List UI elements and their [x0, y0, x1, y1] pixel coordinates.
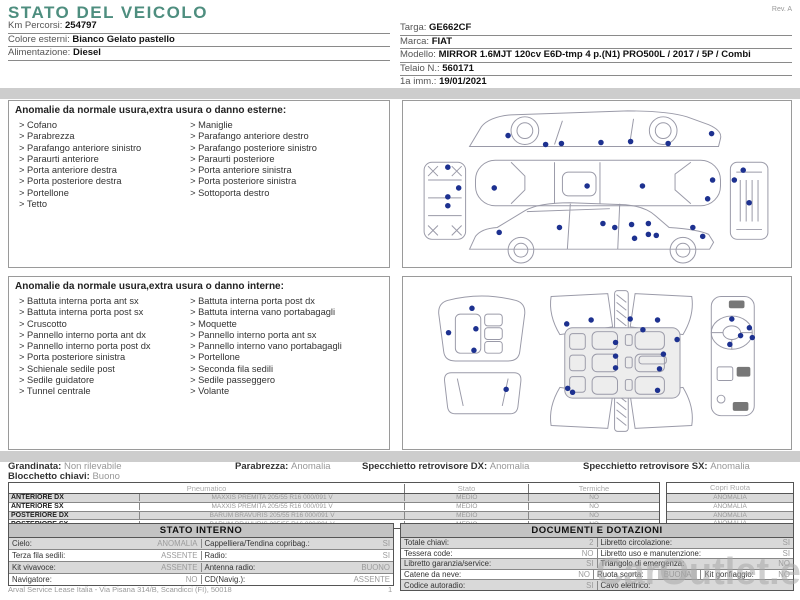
- vehicle-info-row: Targa: GE662CF: [400, 22, 792, 36]
- cell-value: NO: [182, 575, 198, 584]
- table-cell: Radio:SI: [201, 551, 394, 560]
- tyre-table-header: Pneumatico Stato Termiche: [9, 483, 659, 494]
- vehicle-info-right: Targa: GE662CFMarca: FIATModello: MIRROR…: [400, 22, 792, 90]
- anomaly-item: > Pannello interno porta post dx: [19, 341, 190, 352]
- damage-dot: [738, 333, 743, 338]
- interior-anomalies-column-2: > Battuta interna porta post dx> Battuta…: [190, 296, 383, 398]
- tyre-termiche: NO: [528, 494, 659, 501]
- summary-label: Blocchetto chiavi:: [8, 471, 92, 482]
- exterior-anomalies-column-1: > Cofano> Parabrezza> Parafango anterior…: [19, 120, 190, 210]
- summary-item: Blocchetto chiavi: Buono: [8, 471, 120, 482]
- table-cell: Cavo elettrico:: [597, 581, 794, 590]
- damage-dot: [446, 330, 451, 335]
- damage-dot: [710, 177, 716, 183]
- cell-label: Kit vivavoce:: [12, 563, 56, 572]
- tyre-row: ANTERIORE DXMAXXIS PREMITA 205/55 R16 00…: [9, 494, 659, 502]
- anomaly-item: > Moquette: [190, 319, 383, 330]
- info-value: 560171: [442, 63, 474, 74]
- damage-dot: [629, 222, 635, 228]
- cell-value: NO: [774, 559, 790, 568]
- info-label: Colore esterni:: [8, 34, 72, 45]
- cell-value: SI: [582, 559, 593, 568]
- table-cell: Kit gonfiaggio:NO: [700, 570, 793, 579]
- damage-dot: [640, 183, 646, 189]
- exterior-damage-diagram: [402, 100, 792, 268]
- damage-dot: [491, 185, 497, 191]
- cell-label: Terza fila sedili:: [12, 551, 65, 560]
- cell-value: NO: [774, 570, 790, 579]
- table-cell: Cielo:ANOMALIA: [9, 539, 201, 548]
- tyre-header-termiche: Termiche: [528, 484, 659, 493]
- summary-value: Anomalia: [710, 461, 750, 472]
- tyre-termiche: NO: [528, 512, 659, 519]
- damage-dot: [543, 142, 549, 148]
- table-cell: Ruota scorta:BUONA: [593, 570, 700, 579]
- tyre-description: MAXXIS PREMITA 205/55 R16 000/091 V: [139, 503, 405, 510]
- damage-dot: [700, 234, 706, 240]
- damage-dot: [584, 183, 590, 189]
- cell-value: NO: [574, 570, 590, 579]
- anomaly-item: > Battuta interna porta post dx: [190, 296, 383, 307]
- table-cell: Libretto circolazione:SI: [597, 538, 794, 547]
- table-row: Navigatore:NOCD(Navig.):ASSENTE: [9, 573, 393, 585]
- damage-dot: [628, 139, 634, 145]
- anomaly-item: > Portellone: [19, 188, 190, 199]
- table-cell: Triangolo di emergenza:NO: [597, 559, 794, 568]
- summary-item: Specchietto retrovisore SX: Anomalia: [583, 461, 750, 472]
- cell-value: BUONO: [357, 563, 390, 572]
- tyre-stato: MEDIO: [404, 512, 528, 519]
- cell-label: Triangolo di emergenza:: [601, 559, 685, 568]
- tyre-row: POSTERIORE DXBARUM BRAVURIS 205/55 R16 0…: [9, 511, 659, 520]
- info-label: Km Percorsi:: [8, 20, 65, 31]
- cell-label: Cavo elettrico:: [601, 581, 651, 590]
- cell-label: CD(Navig.):: [205, 575, 246, 584]
- tyre-header-pneumatico: Pneumatico: [9, 484, 404, 493]
- interior-anomalies-title: Anomalie da normale usura,extra usura o …: [15, 281, 383, 292]
- info-value: 254797: [65, 20, 97, 31]
- damage-dot: [564, 321, 569, 326]
- anomaly-item: > Tunnel centrale: [19, 386, 190, 397]
- cell-value: SI: [582, 581, 593, 590]
- copri-ruota-value: ANOMALIA: [667, 494, 793, 502]
- table-cell: Terza fila sedili:ASSENTE: [9, 551, 201, 560]
- damage-dot: [588, 317, 593, 322]
- damage-dot: [469, 306, 474, 311]
- summary-label: Specchietto retrovisore SX:: [583, 461, 710, 472]
- cell-value: ASSENTE: [350, 575, 390, 584]
- vehicle-status-report: STATO DEL VEICOLO Rev. A Km Percorsi: 25…: [0, 0, 800, 600]
- anomaly-item: > Pannello interno vano portabagagli: [190, 341, 383, 352]
- tyre-position: ANTERIORE SX: [9, 503, 139, 510]
- cell-label: Libretto uso e manutenzione:: [601, 549, 702, 558]
- damage-dot: [445, 164, 451, 170]
- stato-interno-table: STATO INTERNO Cielo:ANOMALIACappelliera/…: [8, 523, 394, 586]
- info-value: GE662CF: [429, 22, 471, 33]
- table-cell: CD(Navig.):ASSENTE: [201, 575, 394, 584]
- damage-dot: [613, 340, 618, 345]
- cell-value: ASSENTE: [157, 551, 197, 560]
- summary-value: Anomalia: [291, 461, 331, 472]
- anomaly-item: > Pannello interno porta ant dx: [19, 330, 190, 341]
- summary-label: Specchietto retrovisore DX:: [362, 461, 490, 472]
- car-interior-diagram-icon: [404, 277, 790, 445]
- table-row: Cielo:ANOMALIACappelliera/Tendina coprib…: [9, 538, 393, 549]
- damage-dot: [665, 141, 671, 147]
- damage-dot: [632, 236, 638, 242]
- table-cell: Cappelliera/Tendina copribag.:SI: [201, 539, 394, 548]
- anomaly-item: > Porta anteriore destra: [19, 165, 190, 176]
- vehicle-info-row: Modello: MIRROR 1.6MJT 120cv E6D-tmp 4 p…: [400, 49, 792, 63]
- anomaly-item: > Schienale sedile post: [19, 364, 190, 375]
- cell-label: Cielo:: [12, 539, 32, 548]
- table-row: Libretto garanzia/service:SITriangolo di…: [401, 558, 793, 569]
- info-label: Telaio N.:: [400, 63, 442, 74]
- damage-dot: [732, 177, 738, 183]
- exterior-anomalies-column-2: > Maniglie> Parafango anteriore destro> …: [190, 120, 383, 210]
- table-cell: Codice autoradio:SI: [401, 581, 597, 590]
- tyre-position: ANTERIORE DX: [9, 494, 139, 501]
- table-cell: Catene da neve:NO: [401, 570, 593, 579]
- footer-address: Arval Service Lease Italia - Via Pisana …: [8, 585, 232, 594]
- cell-value: SI: [379, 551, 390, 560]
- damage-dot: [598, 140, 604, 146]
- anomaly-item: > Porta posteriore destra: [19, 176, 190, 187]
- cell-value: SI: [779, 549, 790, 558]
- cell-value: ANOMALIA: [153, 539, 197, 548]
- table-cell: Kit vivavoce:ASSENTE: [9, 563, 201, 572]
- damage-dot: [690, 225, 696, 231]
- anomaly-item: > Parafango posteriore sinistro: [190, 143, 383, 154]
- table-cell: Libretto garanzia/service:SI: [401, 559, 597, 568]
- damage-dot: [747, 325, 752, 330]
- anomaly-item: > Tetto: [19, 199, 190, 210]
- tyre-description: MAXXIS PREMITA 205/55 R16 000/091 V: [139, 494, 405, 501]
- summary-value: Anomalia: [490, 461, 530, 472]
- summary-item: Specchietto retrovisore DX: Anomalia: [362, 461, 529, 472]
- stato-interno-title: STATO INTERNO: [9, 524, 393, 538]
- cell-label: Totale chiavi:: [404, 538, 449, 547]
- table-cell: Navigatore:NO: [9, 575, 201, 584]
- damage-dot: [557, 225, 563, 231]
- damage-dot: [570, 390, 575, 395]
- tyre-description: BARUM BRAVURIS 205/55 R16 000/091 V: [139, 512, 405, 519]
- cell-value: SI: [779, 538, 790, 547]
- info-label: Marca:: [400, 36, 432, 47]
- cell-label: Codice autoradio:: [404, 581, 465, 590]
- damage-dot: [655, 388, 660, 393]
- damage-dot: [646, 232, 652, 238]
- damage-dot: [657, 366, 662, 371]
- anomaly-item: > Parafango anteriore sinistro: [19, 143, 190, 154]
- separator-band: [0, 88, 800, 99]
- vehicle-info-row: Marca: FIAT: [400, 36, 792, 50]
- documenti-dotazioni-rows: Totale chiavi:2Libretto circolazione:SIT…: [401, 538, 793, 590]
- anomaly-item: > Cofano: [19, 120, 190, 131]
- table-row: Codice autoradio:SICavo elettrico:: [401, 579, 793, 590]
- tyre-header-stato: Stato: [404, 484, 528, 493]
- table-row: Terza fila sedili:ASSENTERadio:SI: [9, 549, 393, 561]
- vehicle-info-row: Colore esterni: Bianco Gelato pastello: [8, 34, 390, 48]
- damage-dot: [646, 221, 652, 227]
- anomaly-item: > Porta posteriore sinistra: [19, 352, 190, 363]
- tyre-position: POSTERIORE DX: [9, 512, 139, 519]
- damage-dot: [559, 141, 565, 147]
- info-label: Targa:: [400, 22, 429, 33]
- damage-dot: [661, 351, 666, 356]
- table-row: Tessera code:NOLibretto uso e manutenzio…: [401, 548, 793, 559]
- anomaly-item: > Porta anteriore sinistra: [190, 165, 383, 176]
- damage-dot: [727, 342, 732, 347]
- damage-dot: [627, 316, 632, 321]
- anomaly-item: > Portellone: [190, 352, 383, 363]
- exterior-damage-dots: [445, 131, 752, 241]
- interior-damage-diagram: [402, 276, 792, 450]
- damage-dot: [445, 194, 451, 200]
- anomaly-item: > Paraurti anteriore: [19, 154, 190, 165]
- damage-dot: [709, 131, 715, 137]
- info-label: Modello:: [400, 49, 439, 60]
- damage-dot: [496, 230, 502, 236]
- vehicle-info-row: Telaio N.: 560171: [400, 63, 792, 77]
- damage-dot: [750, 335, 755, 340]
- summary-label: Parabrezza:: [235, 461, 291, 472]
- damage-dot: [655, 317, 660, 322]
- anomaly-item: > Sedile passeggero: [190, 375, 383, 386]
- table-row: Kit vivavoce:ASSENTEAntenna radio:BUONO: [9, 561, 393, 573]
- documenti-dotazioni-table: DOCUMENTI E DOTAZIONI Totale chiavi:2Lib…: [400, 523, 794, 591]
- anomaly-item: > Porta posteriore sinistra: [190, 176, 383, 187]
- damage-dot: [565, 386, 570, 391]
- summary-item: Parabrezza: Anomalia: [235, 461, 331, 472]
- info-value: MIRROR 1.6MJT 120cv E6D-tmp 4 p.(N1) PRO…: [439, 49, 751, 60]
- cell-label: Navigatore:: [12, 575, 52, 584]
- cell-label: Antenna radio:: [205, 563, 256, 572]
- cell-label: Libretto circolazione:: [601, 538, 673, 547]
- info-value: FIAT: [432, 36, 452, 47]
- tyre-stato: MEDIO: [404, 494, 528, 501]
- anomaly-item: > Parabrezza: [19, 131, 190, 142]
- cell-value: NO: [578, 549, 594, 558]
- damage-dot: [729, 316, 734, 321]
- cell-label: Kit gonfiaggio:: [704, 570, 753, 579]
- cell-label: Libretto garanzia/service:: [404, 559, 491, 568]
- info-value: Diesel: [73, 47, 101, 58]
- table-row: Catene da neve:NORuota scorta:BUONAKit g…: [401, 569, 793, 580]
- info-value: 19/01/2021: [439, 76, 487, 87]
- anomaly-item: > Parafango anteriore destro: [190, 131, 383, 142]
- interior-anomalies-column-1: > Battuta interna porta ant sx> Battuta …: [19, 296, 190, 398]
- damage-dot: [505, 133, 511, 139]
- damage-dot: [456, 185, 462, 191]
- damage-dot: [640, 327, 645, 332]
- damage-dot: [473, 326, 478, 331]
- cell-label: Catene da neve:: [404, 570, 461, 579]
- damage-dot: [674, 337, 679, 342]
- anomaly-item: > Sedile guidatore: [19, 375, 190, 386]
- damage-dot: [746, 200, 752, 206]
- revision-label: Rev. A: [772, 6, 792, 13]
- cell-value: SI: [379, 539, 390, 548]
- cell-label: Radio:: [205, 551, 228, 560]
- vehicle-info-left: Km Percorsi: 254797Colore esterni: Bianc…: [8, 20, 390, 61]
- damage-dot: [705, 196, 711, 202]
- cell-label: Ruota scorta:: [597, 570, 643, 579]
- vehicle-info-row: Km Percorsi: 254797: [8, 20, 390, 34]
- damage-dot: [740, 167, 746, 173]
- tyre-stato: MEDIO: [404, 503, 528, 510]
- summary-value: Buono: [92, 471, 119, 482]
- exterior-anomalies-box: Anomalie da normale usura,extra usura o …: [8, 100, 390, 268]
- copri-ruota-value: ANOMALIA: [667, 511, 793, 520]
- copri-ruota-value: ANOMALIA: [667, 502, 793, 511]
- damage-dot: [654, 233, 660, 239]
- anomaly-item: > Pannello interno porta ant sx: [190, 330, 383, 341]
- cell-value: BUONA: [658, 570, 698, 579]
- anomaly-item: > Battuta interna porta ant sx: [19, 296, 190, 307]
- damage-dot: [612, 225, 618, 231]
- car-exterior-diagram-icon: [404, 101, 790, 265]
- anomaly-item: > Maniglie: [190, 120, 383, 131]
- cell-value: 2: [585, 538, 593, 547]
- anomaly-item: > Seconda fila sedili: [190, 364, 383, 375]
- info-value: Bianco Gelato pastello: [72, 34, 174, 45]
- damage-dot: [600, 221, 606, 227]
- cell-value: ASSENTE: [157, 563, 197, 572]
- documenti-dotazioni-title: DOCUMENTI E DOTAZIONI: [401, 524, 793, 538]
- copri-ruota-header: Copri Ruota: [667, 483, 793, 494]
- vehicle-info-row: Alimentazione: Diesel: [8, 47, 390, 61]
- damage-dot: [613, 365, 618, 370]
- tyre-termiche: NO: [528, 503, 659, 510]
- damage-dot: [613, 353, 618, 358]
- table-cell: Totale chiavi:2: [401, 538, 597, 547]
- table-cell: Antenna radio:BUONO: [201, 563, 394, 572]
- table-row: Totale chiavi:2Libretto circolazione:SI: [401, 538, 793, 548]
- info-label: Alimentazione:: [8, 47, 73, 58]
- damage-dot: [471, 348, 476, 353]
- anomaly-item: > Cruscotto: [19, 319, 190, 330]
- tyre-row: ANTERIORE SXMAXXIS PREMITA 205/55 R16 00…: [9, 502, 659, 511]
- cell-label: Cappelliera/Tendina copribag.:: [205, 539, 310, 548]
- table-cell: Libretto uso e manutenzione:SI: [597, 549, 794, 558]
- damage-dot: [503, 387, 508, 392]
- page-number: 1: [388, 585, 392, 594]
- exterior-anomalies-title: Anomalie da normale usura,extra usura o …: [15, 105, 383, 116]
- anomaly-item: > Paraurti posteriore: [190, 154, 383, 165]
- anomaly-item: > Battuta interna vano portabagagli: [190, 307, 383, 318]
- damage-dot: [445, 203, 451, 209]
- cell-label: Tessera code:: [404, 549, 453, 558]
- anomaly-item: > Battuta interna porta post sx: [19, 307, 190, 318]
- interior-anomalies-box: Anomalie da normale usura,extra usura o …: [8, 276, 390, 450]
- info-label: 1a imm.:: [400, 76, 439, 87]
- stato-interno-rows: Cielo:ANOMALIACappelliera/Tendina coprib…: [9, 538, 393, 585]
- anomaly-item: > Volante: [190, 386, 383, 397]
- table-cell: Tessera code:NO: [401, 549, 597, 558]
- anomaly-item: > Sottoporta destro: [190, 188, 383, 199]
